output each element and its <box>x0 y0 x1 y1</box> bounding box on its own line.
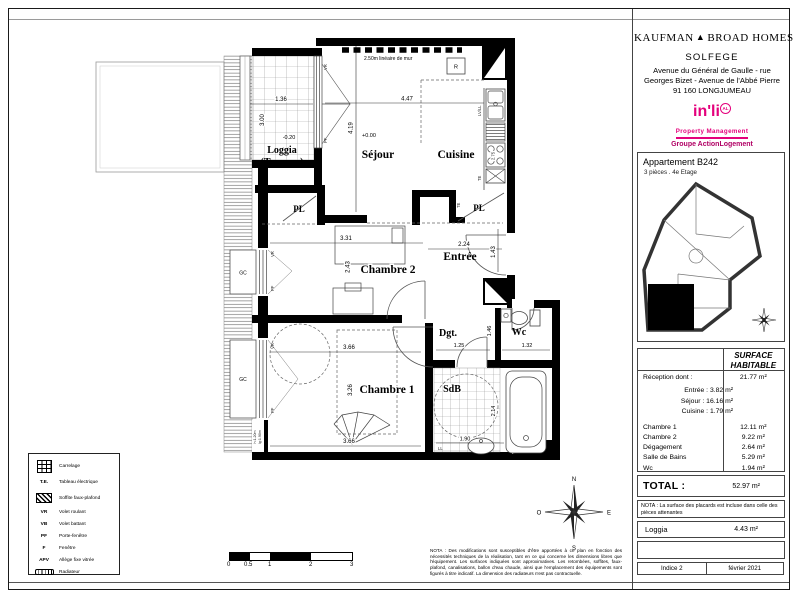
room-chambre2: Chambre 2 <box>360 264 415 276</box>
compass-o: O <box>537 511 542 517</box>
legend-label: Allège fixe vitrée <box>59 558 94 563</box>
total-label: TOTAL : <box>638 480 685 492</box>
desk <box>333 288 373 314</box>
indice-cell: Indice 2 <box>637 562 707 575</box>
dim-sejour-w: 4.47 <box>401 97 413 103</box>
brand-kaufman: KAUFMAN <box>634 32 694 44</box>
brand-broad-homes: BROAD HOMES <box>707 32 793 44</box>
legend-abbr: PF <box>41 534 47 539</box>
legend-row: Radiateur <box>29 566 119 578</box>
dim-sejour-h: 4.19 <box>349 122 355 134</box>
dim-sdb-h: 2.14 <box>491 406 497 417</box>
compass-e: E <box>607 511 611 517</box>
placards-nota-box: NOTA : La surface des placards est inclu… <box>637 500 785 518</box>
scale-label: 3 <box>350 562 353 568</box>
compass-n: N <box>572 477 576 483</box>
window-note-lg: lg:1.90m <box>258 430 262 444</box>
scale-label: 0 <box>227 562 230 568</box>
gc-tag: GC <box>239 271 247 277</box>
surface-table-divider <box>723 349 724 471</box>
legend-label: Porte-fenêtre <box>59 534 87 539</box>
room-sejour: Séjour <box>362 149 395 161</box>
dim-dgt-w: 1.25 <box>454 343 465 349</box>
date-cell: février 2021 <box>706 562 784 575</box>
inli-al-badge-icon: AL <box>720 103 731 114</box>
compass-rose: N S E O <box>537 477 611 552</box>
legend-label: Volet battant <box>59 522 86 527</box>
level-sejour: +0.00 <box>362 133 376 139</box>
surface-row: Chambre 1 12.11 m² <box>638 423 784 433</box>
dim-sdb-w: 1.90 <box>460 437 471 443</box>
dim-entree-w: 2.24 <box>458 242 470 248</box>
legend-label: Soffite faux-plafond <box>59 496 100 501</box>
legend-label: Volet roulant <box>59 510 86 515</box>
legend-row: Carrelage <box>29 458 119 474</box>
scale-label: 0.5 <box>244 562 252 568</box>
legend-abbr: APV <box>39 558 49 563</box>
pf-tag: PF <box>270 407 275 413</box>
entrance-opening <box>506 233 516 275</box>
dim-ch1-h: 3.26 <box>348 384 354 396</box>
row-value: 5.29 m² <box>723 453 784 463</box>
key-plan-apartment-highlight <box>648 284 694 330</box>
scale-bar: 0 0.5 1 2 3 <box>229 552 353 570</box>
shaft-entree <box>483 278 510 305</box>
legend-label: Radiateur <box>59 570 80 575</box>
washbasin <box>468 438 494 454</box>
dim-cuisine-h: 2.75 <box>491 151 496 160</box>
brand-triangle-icon: ▲ <box>694 32 708 42</box>
detail-entree: Entrée : 3.82 m² <box>651 386 733 397</box>
vr-tag: VR <box>323 64 328 70</box>
legend-row: VR Volet roulant <box>29 506 119 518</box>
vr-tag: VR <box>270 343 275 349</box>
radiateur-symbol <box>35 569 54 575</box>
gc-tag: GC <box>239 377 247 383</box>
project-address: Avenue du Général de Gaulle - rue George… <box>634 66 790 96</box>
address-line3: 91 160 LONGJUMEAU <box>634 86 790 96</box>
dishwasher <box>486 123 505 141</box>
sdb-door <box>457 337 487 367</box>
empty-box <box>637 541 785 559</box>
room-pl-right: PL <box>473 203 485 213</box>
legend-label: Tableau électrique <box>59 480 98 485</box>
reception-row: Réception dont : 21.77 m² <box>638 373 784 383</box>
dim-ch2-h: 2.43 <box>346 261 352 273</box>
key-plan-compass-icon <box>752 308 776 332</box>
inli-group-name: Groupe ActionLogement <box>634 141 790 149</box>
reception-label: Réception dont : <box>638 373 723 383</box>
room-entree: Entrée <box>443 251 476 263</box>
room-loggia-sub: (Terrasse) <box>261 157 304 168</box>
row-label: Salle de Bains <box>638 453 723 463</box>
dim-wc-h: 1.46 <box>487 326 493 337</box>
legend-row: APV Allège fixe vitrée <box>29 554 119 566</box>
radiator-tag: R <box>454 65 458 71</box>
kitchen-sink <box>486 89 505 121</box>
apartment-title: Appartement B242 <box>643 157 784 167</box>
hand-basin <box>501 309 511 322</box>
surface-row: Chambre 2 9.22 m² <box>638 433 784 443</box>
detail-cuisine: Cuisine : 1.79 m² <box>651 407 733 418</box>
te-tag: TE <box>477 175 482 181</box>
legend-row: T.E. Tableau électrique <box>29 474 119 490</box>
surface-header-line2: HABITABLE <box>731 361 777 370</box>
project-name: SOLFEGE <box>634 52 790 63</box>
brand-block: KAUFMAN▲BROAD HOMES SOLFEGE Avenue du Gé… <box>634 32 790 149</box>
legend-row: Soffite faux-plafond <box>29 490 119 506</box>
surface-header-line1: SURFACE <box>734 351 772 360</box>
legend-label: Carrelage <box>59 464 80 469</box>
row-label: Chambre 2 <box>638 433 723 443</box>
room-sdb: SdB <box>443 384 461 395</box>
key-plan <box>638 178 784 340</box>
room-chambre1: Chambre 1 <box>359 384 414 396</box>
scale-label: 1 <box>268 562 271 568</box>
row-value: 9.22 m² <box>723 433 784 443</box>
surface-table: SURFACEHABITABLE Réception dont : 21.77 … <box>637 348 785 472</box>
room-loggia: Loggia <box>267 145 296 156</box>
neighbour-terrace <box>96 56 252 452</box>
sdb-fixtures <box>434 368 546 454</box>
carrelage-symbol <box>37 460 52 473</box>
legend-abbr: VR <box>41 510 48 515</box>
ll-tag: LL <box>438 446 443 451</box>
dim-wc-w: 1.32 <box>522 343 533 349</box>
room-pl-left: PL <box>293 204 305 214</box>
chambre2-door <box>387 281 425 319</box>
level-loggia: -0.20 <box>283 135 296 141</box>
wc-door-opening <box>512 299 534 309</box>
loggia-surface-box: Loggia 4.43 m² <box>637 521 785 538</box>
legend-row: PF Porte-fenêtre <box>29 530 119 542</box>
brand-logo: KAUFMAN▲BROAD HOMES <box>634 32 790 44</box>
address-line2: Georges Bizet - Avenue de l'Abbé Pierre <box>634 76 790 86</box>
row-value: 2.64 m² <box>723 443 784 453</box>
surface-row: Wc 1.94 m² <box>638 464 784 474</box>
inli-tagline: Property Management <box>676 129 749 139</box>
legend-abbr: T.E. <box>40 480 48 485</box>
inli-wordmark: in'li <box>693 103 720 121</box>
dim-entree-h: 1.43 <box>491 246 497 258</box>
window-note-h: h:1.20m <box>253 431 257 444</box>
row-label: Chambre 1 <box>638 423 723 433</box>
nota-disclaimer: NOTA : Des modifications sont susceptibl… <box>430 548 622 577</box>
row-value: 12.11 m² <box>723 423 784 433</box>
surface-row: Salle de Bains 5.29 m² <box>638 453 784 463</box>
legend-row: F Fenêtre <box>29 542 119 554</box>
toilet <box>511 312 528 325</box>
detail-sejour: Séjour : 16.16 m² <box>651 397 733 408</box>
surface-table-header: SURFACEHABITABLE <box>638 349 784 371</box>
loggia-label: Loggia <box>638 525 668 534</box>
vr-tag: VR <box>270 251 275 257</box>
loggia-window <box>314 56 322 148</box>
dim-ch1-w: 3.66 <box>343 345 355 351</box>
apartment-box: Appartement B242 3 pièces . 4e Etage <box>637 152 785 342</box>
inli-logo: in'liAL Property Management Groupe Actio… <box>634 103 790 149</box>
room-wc: Wc <box>512 327 527 338</box>
row-label: Wc <box>638 464 723 474</box>
reception-value: 21.77 m² <box>723 373 784 383</box>
scale-label: 2 <box>309 562 312 568</box>
legend-abbr: F <box>43 546 46 551</box>
dim-ch2-w: 3.31 <box>340 236 352 242</box>
total-value: 52.97 m² <box>732 483 760 490</box>
dim-loggia-w: 1.36 <box>275 97 287 103</box>
pf-tag: PF <box>323 137 328 143</box>
apartment-subtitle: 3 pièces . 4e Etage <box>644 169 784 176</box>
mur-lineaire-label: 2.50m linéaire de mur <box>364 56 413 62</box>
lvll-tag: LV/LL <box>477 105 482 116</box>
pf-tag: PF <box>270 285 275 291</box>
dim-loggia-h: 3.00 <box>260 114 266 126</box>
room-cuisine: Cuisine <box>437 149 474 161</box>
legend-abbr: VB <box>41 522 48 527</box>
title-block: KAUFMAN▲BROAD HOMES SOLFEGE Avenue du Gé… <box>634 8 790 592</box>
legend-row: VB Volet battant <box>29 518 119 530</box>
legend-box: Carrelage T.E. Tableau électrique Soffit… <box>28 453 120 575</box>
wc-fixtures <box>501 309 540 326</box>
surface-row: Dégagement 2.64 m² <box>638 443 784 453</box>
shaft-kitchen <box>482 46 507 80</box>
te-tag: TE <box>456 202 461 208</box>
dim-ch1-w-bottom: 3.66 <box>343 439 355 445</box>
reception-details: Entrée : 3.82 m² Séjour : 16.16 m² Cuisi… <box>638 386 723 418</box>
soffite-symbol <box>36 493 52 503</box>
bed2 <box>335 226 405 264</box>
room-dgt: Dgt. <box>439 328 458 339</box>
revision-row: Indice 2 février 2021 <box>637 562 785 575</box>
floor-plan-sheet: { "header": { "brand_left": "KAUFMAN", "… <box>0 0 800 600</box>
total-box: TOTAL : 52.97 m² <box>637 475 785 497</box>
address-line1: Avenue du Général de Gaulle - rue <box>634 66 790 76</box>
row-value: 1.94 m² <box>723 464 784 474</box>
loggia-value: 4.43 m² <box>734 526 758 533</box>
legend-label: Fenêtre <box>59 546 76 551</box>
row-label: Dégagement <box>638 443 723 453</box>
